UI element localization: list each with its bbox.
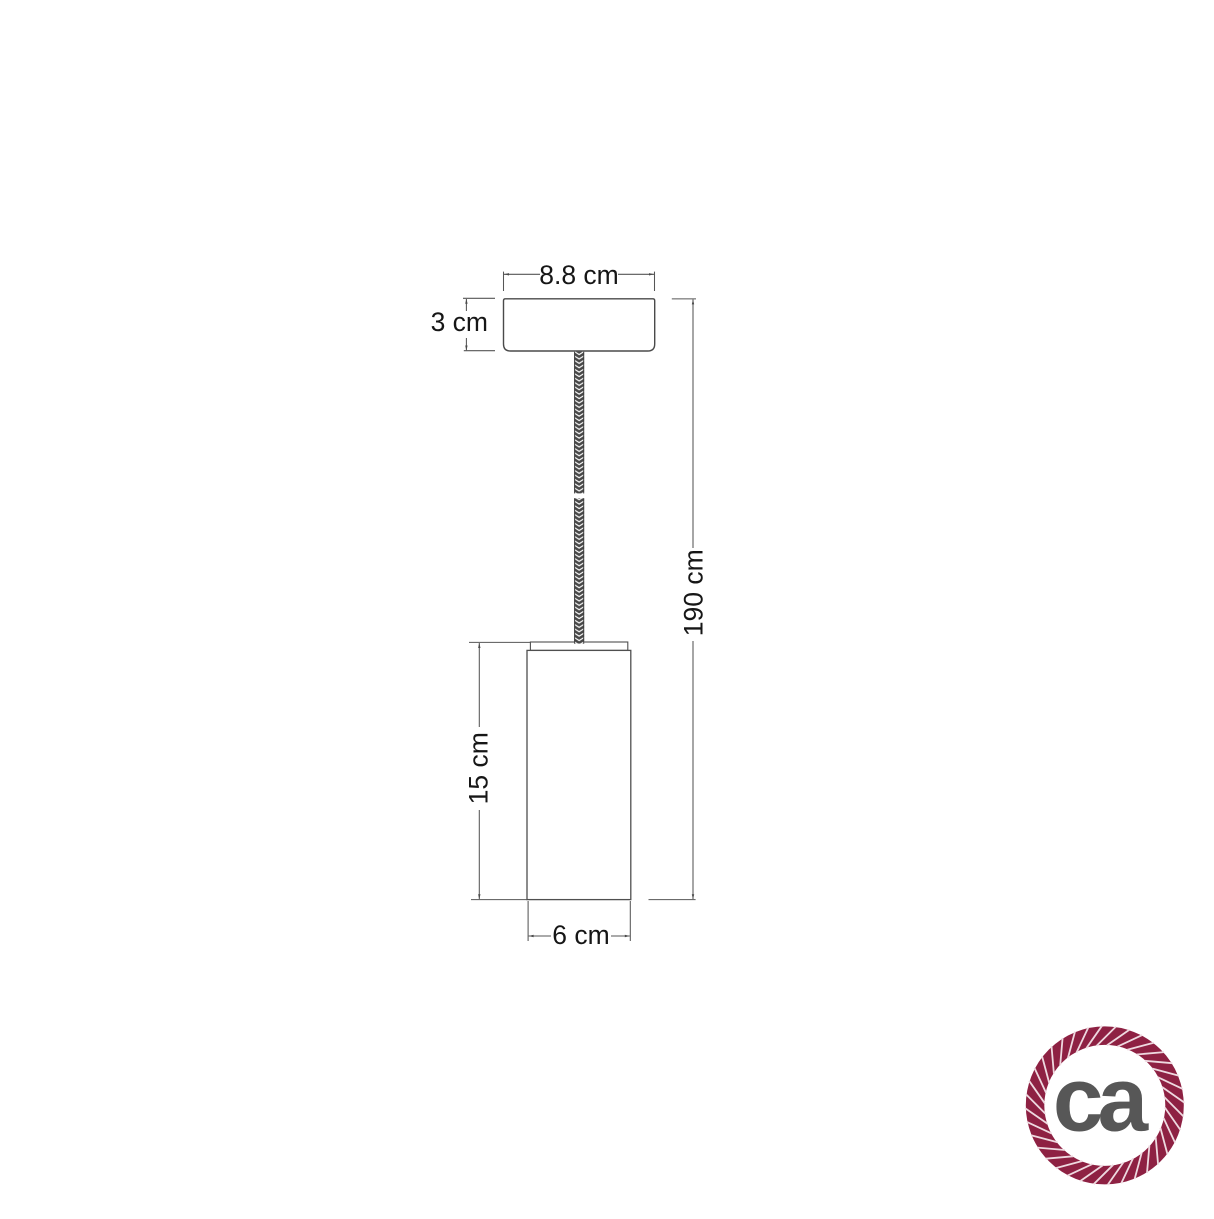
svg-text:3 cm: 3 cm [431, 307, 488, 337]
svg-text:8.8 cm: 8.8 cm [539, 260, 619, 290]
svg-text:6 cm: 6 cm [552, 920, 609, 950]
svg-text:ca: ca [1053, 1049, 1150, 1150]
svg-text:15 cm: 15 cm [464, 732, 494, 804]
svg-text:190 cm: 190 cm [679, 549, 709, 636]
